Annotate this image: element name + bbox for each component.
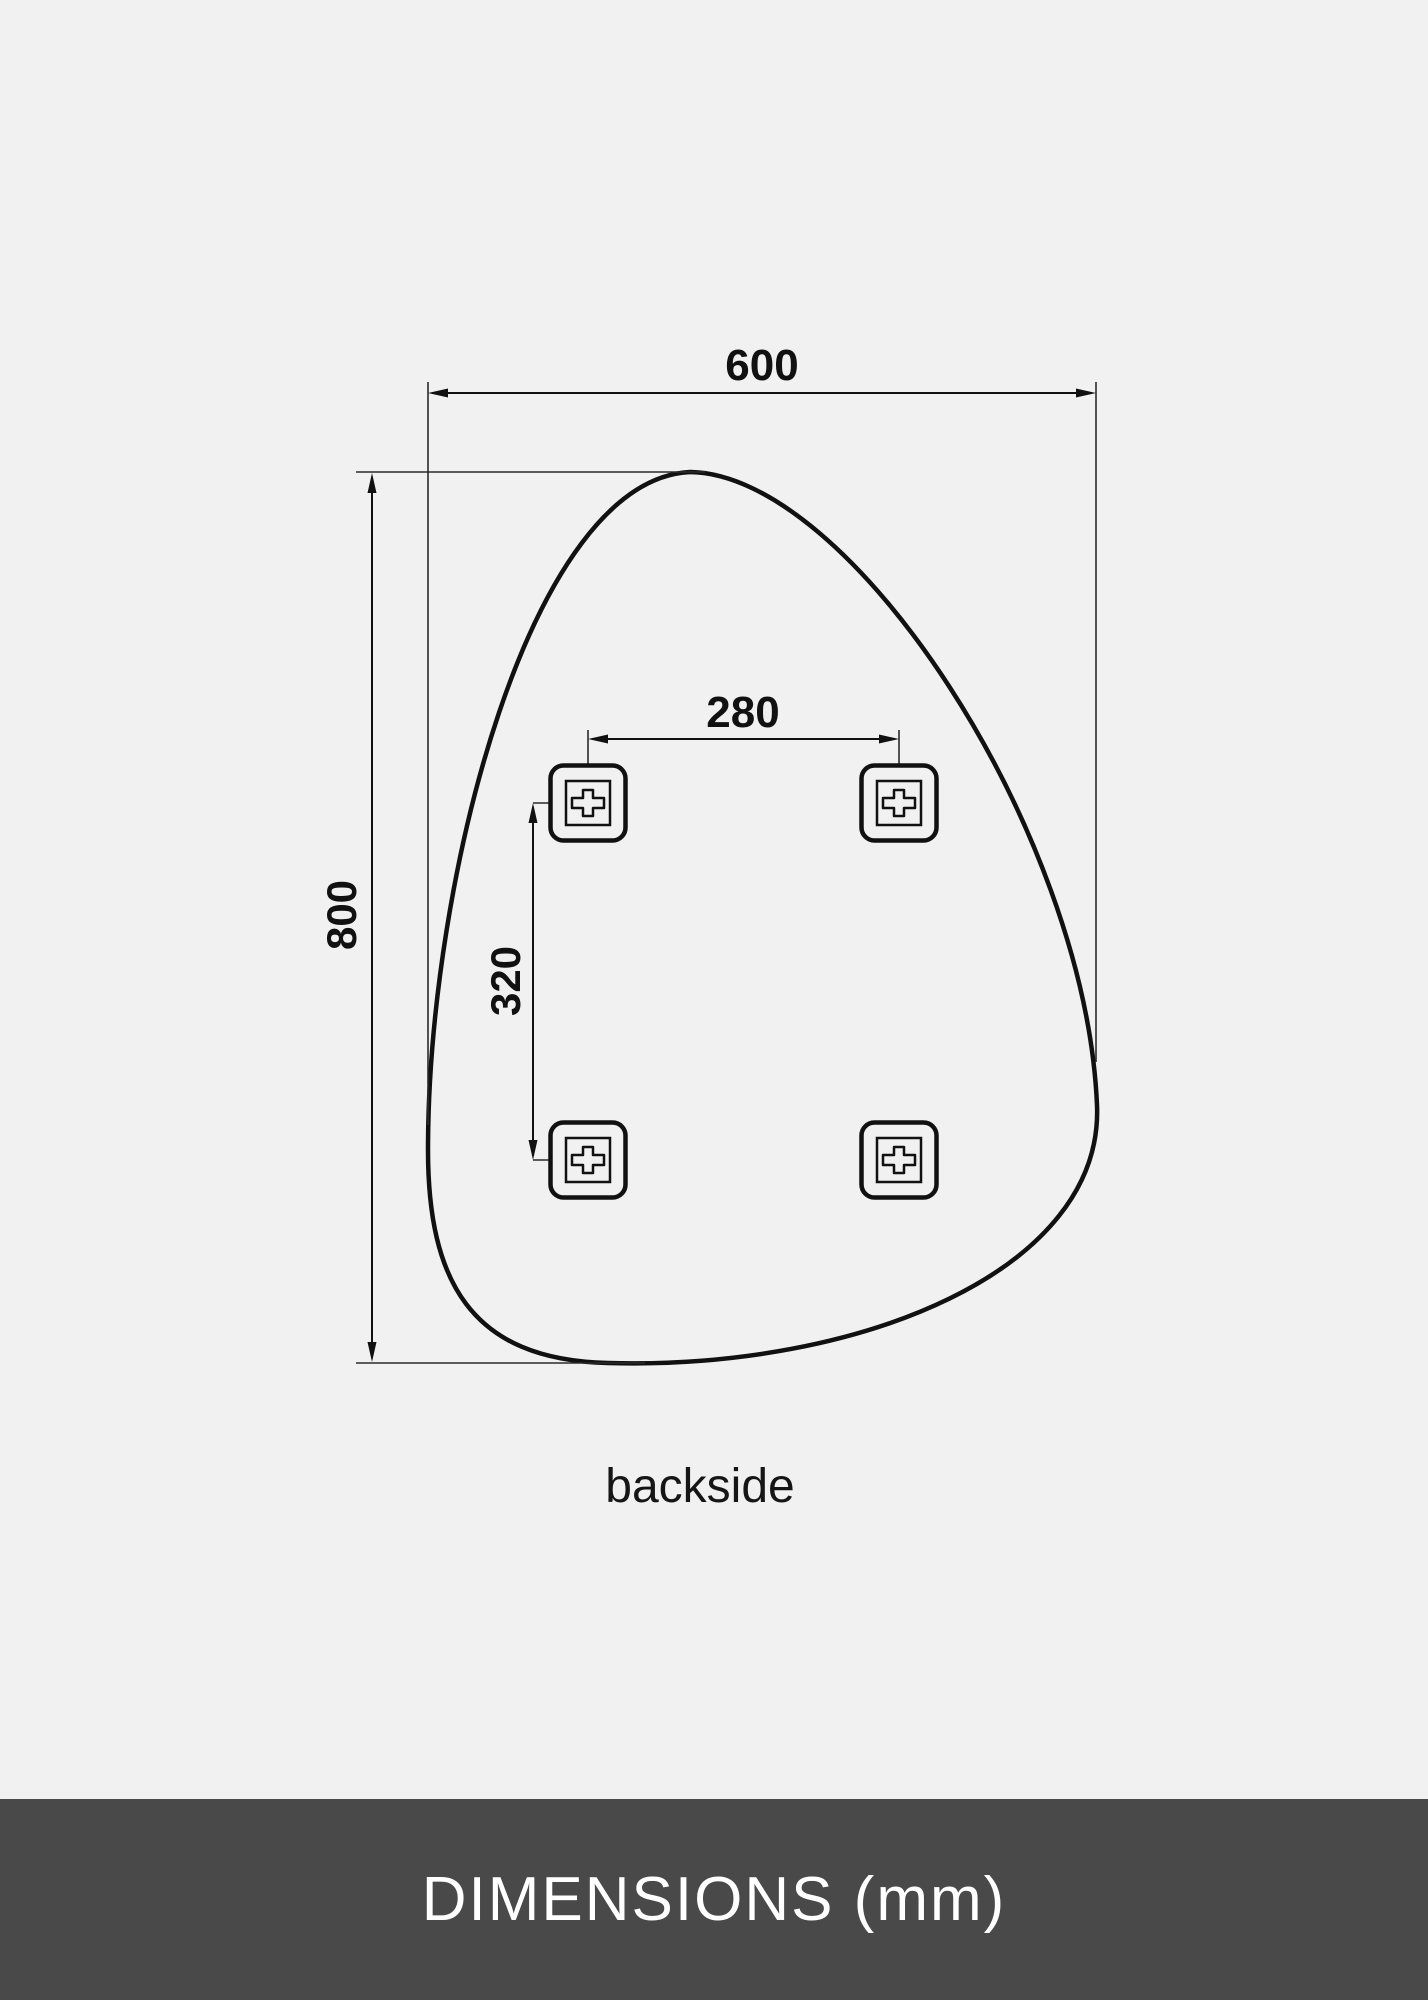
plus-icon — [572, 790, 604, 816]
bracket-outer-square — [551, 766, 626, 841]
arrow-right-icon — [879, 735, 899, 744]
arrow-left-icon — [588, 735, 608, 744]
plus-icon — [883, 790, 915, 816]
bracket-outer-square — [551, 1123, 626, 1198]
arrow-right-icon — [1076, 389, 1096, 398]
mounting-bracket-bottom-left — [551, 1123, 626, 1198]
mounting-bracket-bottom-right — [862, 1123, 937, 1198]
hole-spacing-horizontal-value: 280 — [706, 688, 779, 737]
bracket-outer-square — [862, 766, 937, 841]
arrow-up-icon — [368, 473, 377, 493]
arrow-left-icon — [428, 389, 448, 398]
arrow-down-icon — [529, 1140, 538, 1160]
bracket-outer-square — [862, 1123, 937, 1198]
mirror-dimension-drawing: 600 800 280 320 — [0, 0, 1428, 2000]
plus-icon — [883, 1147, 915, 1173]
plus-icon — [572, 1147, 604, 1173]
mirror-outline-shape — [428, 472, 1097, 1363]
dimension-diagram-page: 600 800 280 320 — [0, 0, 1428, 2000]
mounting-bracket-top-right — [862, 766, 937, 841]
arrow-down-icon — [368, 1342, 377, 1362]
hole-spacing-vertical-value: 320 — [482, 946, 529, 1016]
footer-title: DIMENSIONS (mm) — [422, 1864, 1007, 1935]
footer-band: DIMENSIONS (mm) — [0, 1799, 1428, 2000]
height-dimension-value: 800 — [318, 880, 365, 950]
mounting-bracket-top-left — [551, 766, 626, 841]
width-dimension-value: 600 — [725, 341, 798, 390]
arrow-up-icon — [529, 803, 538, 823]
view-label: backside — [605, 1460, 794, 1513]
